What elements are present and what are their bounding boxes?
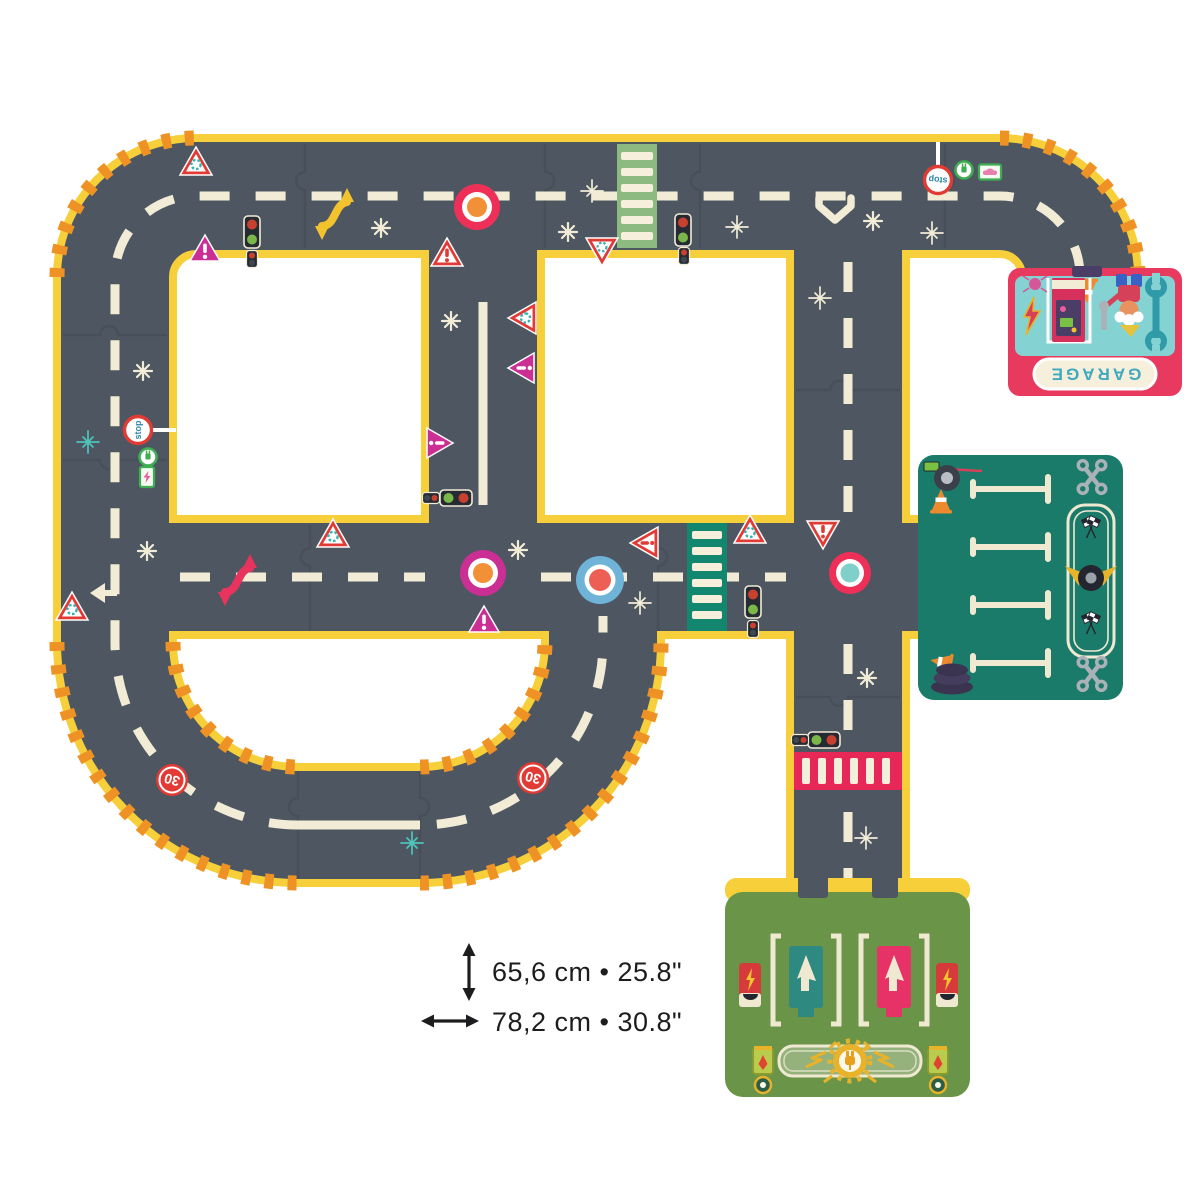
charging-post-icon (739, 963, 761, 1007)
arrow-left-icon (421, 1015, 434, 1028)
ev-charging-sticker (956, 162, 973, 179)
start-finish-piece (725, 874, 970, 1097)
product-image: stop stop 30 30 (0, 0, 1200, 1200)
traffic-light-icon (745, 586, 761, 618)
traffic-light-small-icon (748, 621, 759, 638)
traffic-light-small-icon (679, 248, 690, 265)
roundabout-disc-blue-red (576, 556, 624, 604)
traffic-light-small-icon (247, 251, 258, 268)
arrow-down-icon (463, 988, 476, 1001)
width-label: 78,2 cm • 30.8" (492, 1007, 682, 1037)
height-label: 65,6 cm • 25.8" (492, 957, 682, 987)
start-box-teal (789, 946, 823, 1017)
road-puzzle-illustration: stop stop 30 30 (0, 0, 1200, 1200)
roundabout-disc-magenta-orange (460, 550, 506, 596)
speed-limit-30-sign: 30 (517, 762, 549, 794)
dimension-annotations: 65,6 cm • 25.8" 78,2 cm • 30.8" (421, 943, 682, 1037)
garage-tool-cabinet (1048, 278, 1090, 342)
garage-lamp (1072, 266, 1102, 277)
arrow-up-icon (463, 943, 476, 956)
medal-badge (753, 1046, 773, 1093)
stop-sign: stop (125, 417, 152, 444)
svg-text:stop: stop (133, 420, 143, 440)
puzzle-tab (798, 874, 828, 898)
garage-label: GARAGE (1049, 365, 1142, 384)
medal-badge (928, 1046, 948, 1093)
roundabout-disc-red-orange (454, 184, 500, 230)
finish-banner (779, 1041, 921, 1082)
puzzle-tab (872, 874, 898, 898)
charging-post-icon (936, 963, 958, 1007)
crosswalk-pink (794, 752, 902, 790)
arrow-right-icon (466, 1015, 479, 1028)
height-dimension: 65,6 cm • 25.8" (463, 943, 683, 1001)
start-box-pink (877, 946, 911, 1017)
speed-limit-30-sign: 30 (156, 764, 188, 796)
stop-sign: stop (925, 167, 952, 194)
traffic-light-small-icon (792, 735, 809, 746)
roundabout-disc-pink-teal (829, 552, 871, 594)
garage-piece: GARAGE (1008, 266, 1182, 396)
traffic-light-small-icon (423, 493, 440, 504)
width-dimension: 78,2 cm • 30.8" (421, 1007, 682, 1037)
traffic-light-icon (675, 214, 691, 246)
traffic-light-icon-horizontal (440, 490, 472, 506)
garage-banner: GARAGE (1034, 359, 1156, 389)
car-wash-sticker (979, 165, 1001, 180)
parking-piece (918, 455, 1123, 700)
svg-text:stop: stop (928, 174, 948, 186)
crosswalk-teal (687, 523, 727, 631)
ev-charging-sticker (140, 449, 157, 466)
traffic-light-icon-horizontal (808, 732, 840, 748)
traffic-light-icon (244, 216, 260, 248)
charging-station-sticker (140, 467, 154, 487)
crosswalk-green (617, 144, 657, 248)
